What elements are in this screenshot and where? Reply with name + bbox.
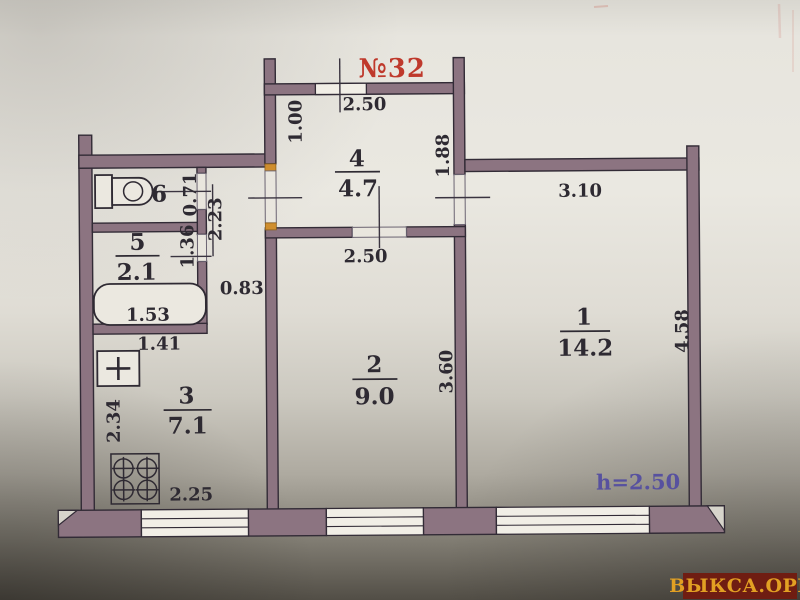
room-number: 1: [576, 304, 592, 331]
apartment-number: №32: [358, 54, 426, 84]
hall-room2-divider-east: [406, 227, 465, 237]
watermark: ВЫКСА.ОРГ: [669, 573, 800, 599]
corridor-hall-door-opening: [265, 171, 276, 223]
watermark-text: ВЫКСА.ОРГ: [669, 575, 800, 597]
dim-room4-right: 1.88: [433, 134, 454, 178]
room-number: 5: [129, 229, 145, 256]
toilet-icon: [95, 175, 153, 208]
sink-icon: [97, 351, 139, 386]
dim-kitchen-depth: 2.34: [104, 399, 125, 443]
floor-plan-photo: №32 1 14.2 2 9.0 3 7.1 4 4.7 5 2.1 6: [0, 0, 800, 600]
hall-room2-divider-west: [265, 227, 352, 238]
room-label-6: 6: [151, 181, 167, 208]
hall-east-wall-upper: [453, 58, 465, 175]
window: [326, 508, 423, 536]
room1-top-wall: [465, 158, 699, 172]
floor-plan-svg: №32 1 14.2 2 9.0 3 7.1 4 4.7 5 2.1 6: [0, 0, 800, 600]
room-area: 14.2: [557, 335, 613, 362]
dim-room2-depth: 3.60: [436, 350, 457, 394]
hall-west-wall-lower: [265, 230, 278, 511]
dim-room1-width: 3.10: [558, 181, 602, 202]
left-exterior-wall: [79, 135, 95, 514]
dim-room2-width: 2.50: [344, 246, 388, 267]
room-number: 2: [366, 351, 382, 378]
dim-wc-door: 0.71: [180, 172, 201, 216]
dim-room1-depth: 4.58: [672, 309, 693, 353]
hall-room1-door-opening: [454, 175, 465, 225]
bottom-wall-band: [58, 506, 724, 538]
window: [141, 509, 248, 537]
window: [496, 506, 649, 534]
door-hinge-mark: [265, 164, 276, 171]
dim-bathtub-length: 1.53: [126, 305, 170, 326]
room-number: 6: [151, 181, 167, 208]
dim-corridor-width: 0.83: [220, 278, 264, 299]
ceiling-height-note: h=2.50: [596, 469, 680, 495]
dim-kitchen-sink-offset: 1.41: [137, 334, 181, 355]
band-wall-segment: [423, 507, 496, 535]
room-area: 7.1: [168, 412, 208, 439]
door-hinge-mark: [265, 223, 276, 230]
room-number: 4: [349, 145, 365, 172]
wc-top-wall: [79, 154, 267, 168]
room-area: 2.1: [117, 259, 157, 286]
dim-bath-wall: 1.36: [177, 224, 198, 268]
band-wall-segment: [248, 509, 326, 537]
room-area: 9.0: [354, 383, 394, 410]
room-area: 4.7: [338, 175, 378, 202]
hall-top-window: [315, 83, 366, 94]
hall-west-wall-upper: [264, 59, 276, 164]
dim-room4-upper-depth: 1.00: [285, 100, 306, 144]
dim-room4-width: 2.50: [343, 94, 387, 115]
room-number: 3: [178, 382, 194, 409]
dim-kitchen-width: 2.25: [169, 484, 213, 505]
dim-corridor-length: 2.23: [205, 197, 226, 241]
